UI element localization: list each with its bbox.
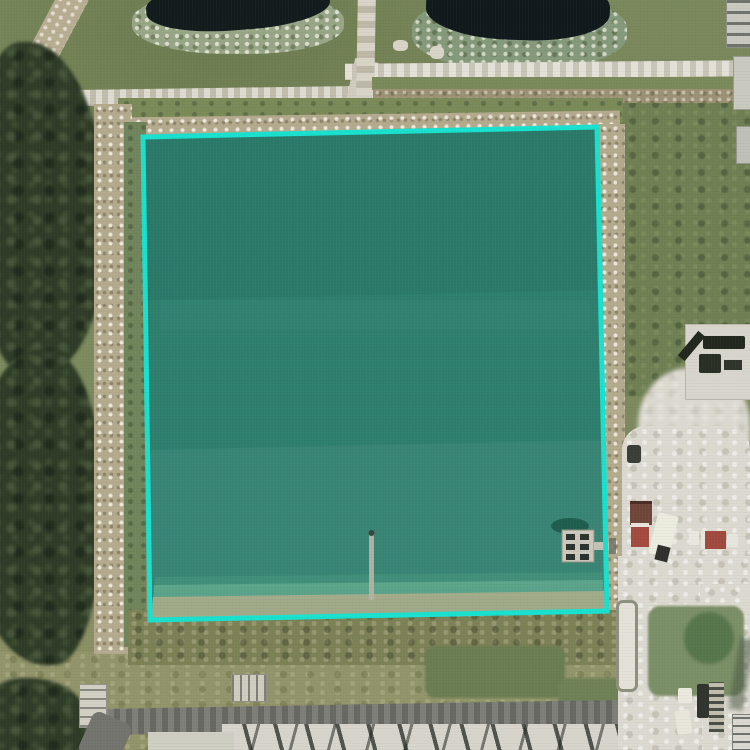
platform-slot bbox=[580, 534, 589, 540]
platform-slot bbox=[566, 534, 575, 540]
satellite-map-canvas[interactable] bbox=[0, 0, 750, 750]
water-tone-dark bbox=[143, 127, 598, 300]
dock-end bbox=[369, 530, 375, 536]
water-streak bbox=[160, 300, 590, 330]
platform-slot bbox=[566, 554, 575, 560]
platform-slot bbox=[580, 554, 589, 560]
bank-fixture bbox=[609, 538, 616, 554]
platform-slot bbox=[566, 544, 575, 550]
dock-walkway bbox=[369, 534, 374, 600]
water-tone-light bbox=[149, 440, 605, 592]
platform-slot bbox=[580, 544, 589, 550]
highlighted-pond-layer bbox=[0, 0, 750, 750]
